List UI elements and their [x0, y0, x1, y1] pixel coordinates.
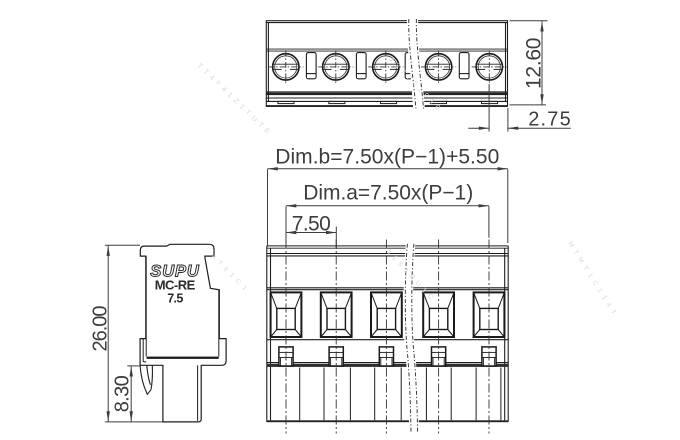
svg-text:Dim.b=7.50x(P−1)+5.50: Dim.b=7.50x(P−1)+5.50: [275, 145, 499, 168]
svg-text:7.50: 7.50: [292, 212, 331, 235]
svg-text:8.30: 8.30: [112, 375, 134, 412]
svg-text:MC-RE: MC-RE: [155, 278, 196, 293]
svg-text:2.75: 2.75: [528, 109, 571, 131]
svg-text:7.5: 7.5: [167, 291, 183, 305]
svg-text:Dim.a=7.50x(P−1): Dim.a=7.50x(P−1): [303, 181, 473, 204]
svg-text:12.60: 12.60: [523, 38, 546, 90]
svg-text:A T 6 1 C 1: A T 6 1 C 1: [210, 253, 249, 292]
svg-text:26.00: 26.00: [89, 306, 111, 352]
svg-text:M T M T 1 C 1 1 4 T: M T M T 1 C 1 1 4 T: [566, 240, 618, 317]
svg-text:T T 4 F 4 1 Z 1 T U T E: T T 4 F 4 1 Z 1 T U T E: [196, 62, 272, 136]
